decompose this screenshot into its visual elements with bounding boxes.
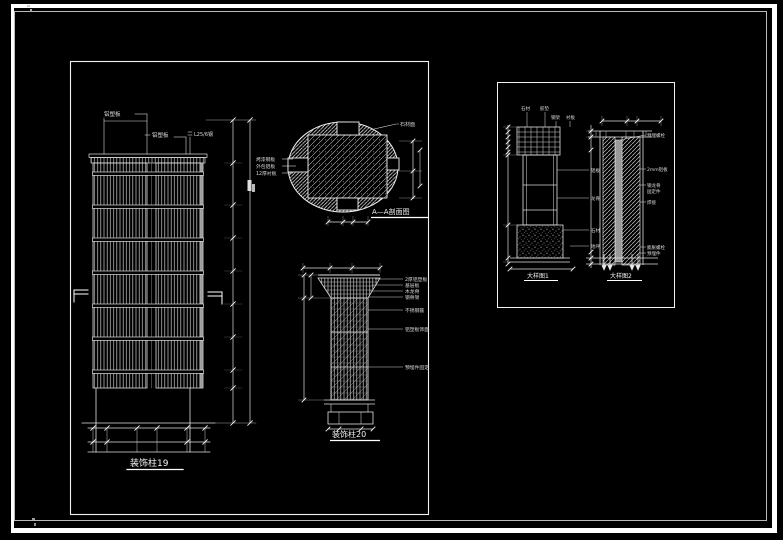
section-aa-plan: 烤漆钢板 外包铝板 12厚衬板 石材面 A—A剖面图	[256, 121, 429, 226]
detail1-top-label-1: 石材	[521, 105, 530, 112]
detail1-stipple-base	[510, 225, 570, 262]
detail2-right-label-3: 固定件	[647, 188, 661, 195]
detail1-right-label-3: 石材	[591, 227, 600, 234]
section-aa-topright-label: 石材面	[400, 121, 415, 128]
column20-leader-7: 预埋件固定	[405, 364, 429, 371]
detail2-right-label-1: 2mm铝板	[647, 166, 668, 173]
detail1-section: 石材 胶垫 钢架 衬板	[503, 105, 600, 281]
detail1-shaft	[523, 155, 557, 225]
detail1-title: 大样图1	[527, 272, 549, 280]
column20-left-dims	[298, 273, 331, 403]
detail1-top-label-2: 胶垫	[540, 105, 549, 112]
detail1-band-stack	[517, 127, 560, 155]
section-aa-title: A—A剖面图	[372, 207, 410, 216]
column20-leader-5: 不锈钢箍	[405, 307, 424, 314]
column19-leaders	[104, 114, 192, 154]
column20-leader-lines	[368, 279, 403, 367]
column20-leader-6: 铝塑板饰面	[405, 326, 429, 333]
detail2-title: 大样图2	[610, 272, 632, 280]
column20-leader-3: 木龙骨	[405, 288, 420, 295]
detail1-right-label-1: 铝板	[591, 167, 600, 174]
section-cut-mark-left	[74, 290, 88, 302]
detail2-walls	[600, 131, 643, 265]
section-aa-left-label-3: 12厚衬板	[256, 170, 277, 177]
column19-title: 装饰柱19	[130, 457, 169, 469]
cad-drawing: 铝塑板 铝塑板 L25/6钢 装饰柱19	[0, 0, 783, 540]
column20-leader-1: 2厚铝塑板	[405, 276, 427, 283]
column20-leader-2: 基层板	[405, 282, 420, 289]
detail2-top-slab	[588, 131, 652, 137]
column19-label-top2: 铝塑板	[152, 131, 169, 139]
dim-text-blob	[252, 184, 255, 192]
detail1-bottom-dim	[508, 267, 576, 272]
detail2-topright-label: 预埋螺栓	[647, 132, 665, 139]
column20-detail: 2厚铝塑板 基层板 木龙骨 钢骨架 不锈钢箍 铝塑板饰面 预埋件固定 装饰柱20	[298, 263, 429, 441]
column20-shaft	[331, 298, 368, 400]
detail2-top-dim	[600, 116, 664, 126]
column20-capital	[318, 275, 380, 298]
column19-elevation: 铝塑板 铝塑板 L25/6钢 装饰柱19	[74, 110, 256, 470]
detail2-right-label-5: 膨胀螺栓	[647, 244, 665, 251]
column20-leader-4: 钢骨架	[405, 294, 420, 301]
column19-dimensions	[206, 118, 256, 426]
detail2-core-bar	[616, 140, 623, 262]
column19-label-top1: 铝塑板	[104, 110, 121, 118]
cad-canvas: 铝塑板 铝塑板 L25/6钢 装饰柱19	[0, 0, 783, 540]
column20-base	[324, 400, 375, 431]
detail2-right-label-4: 焊接	[647, 199, 656, 206]
right-panel-frame	[498, 83, 675, 308]
corner-artifact	[27, 5, 36, 526]
column19-base	[82, 388, 215, 452]
detail1-top-label-4: 衬板	[566, 114, 575, 121]
column20-top-dim	[301, 263, 383, 273]
detail1-right-label-2: 龙骨	[591, 195, 600, 202]
detail1-right-label-4: 地坪	[591, 243, 600, 250]
detail2-right-label-2: 钢龙骨	[647, 182, 661, 189]
detail2-right-label-6: 预埋件	[647, 250, 661, 257]
section-aa-right-dims	[399, 139, 422, 201]
dim-text-blob	[248, 180, 252, 191]
section-aa-left-label-2: 外包铝板	[256, 163, 275, 170]
detail1-top-leaders	[527, 112, 570, 127]
detail1-top-label-3: 钢架	[551, 114, 560, 121]
section-aa-bottom-dims	[326, 216, 371, 226]
section-aa-topright-leader	[370, 124, 399, 130]
column19-label-top3: L25/6钢	[194, 131, 213, 138]
section-cut-mark-right	[208, 292, 222, 304]
column20-title: 装饰柱20	[332, 429, 366, 439]
section-aa-left-label-1: 烤漆钢板	[256, 156, 275, 163]
